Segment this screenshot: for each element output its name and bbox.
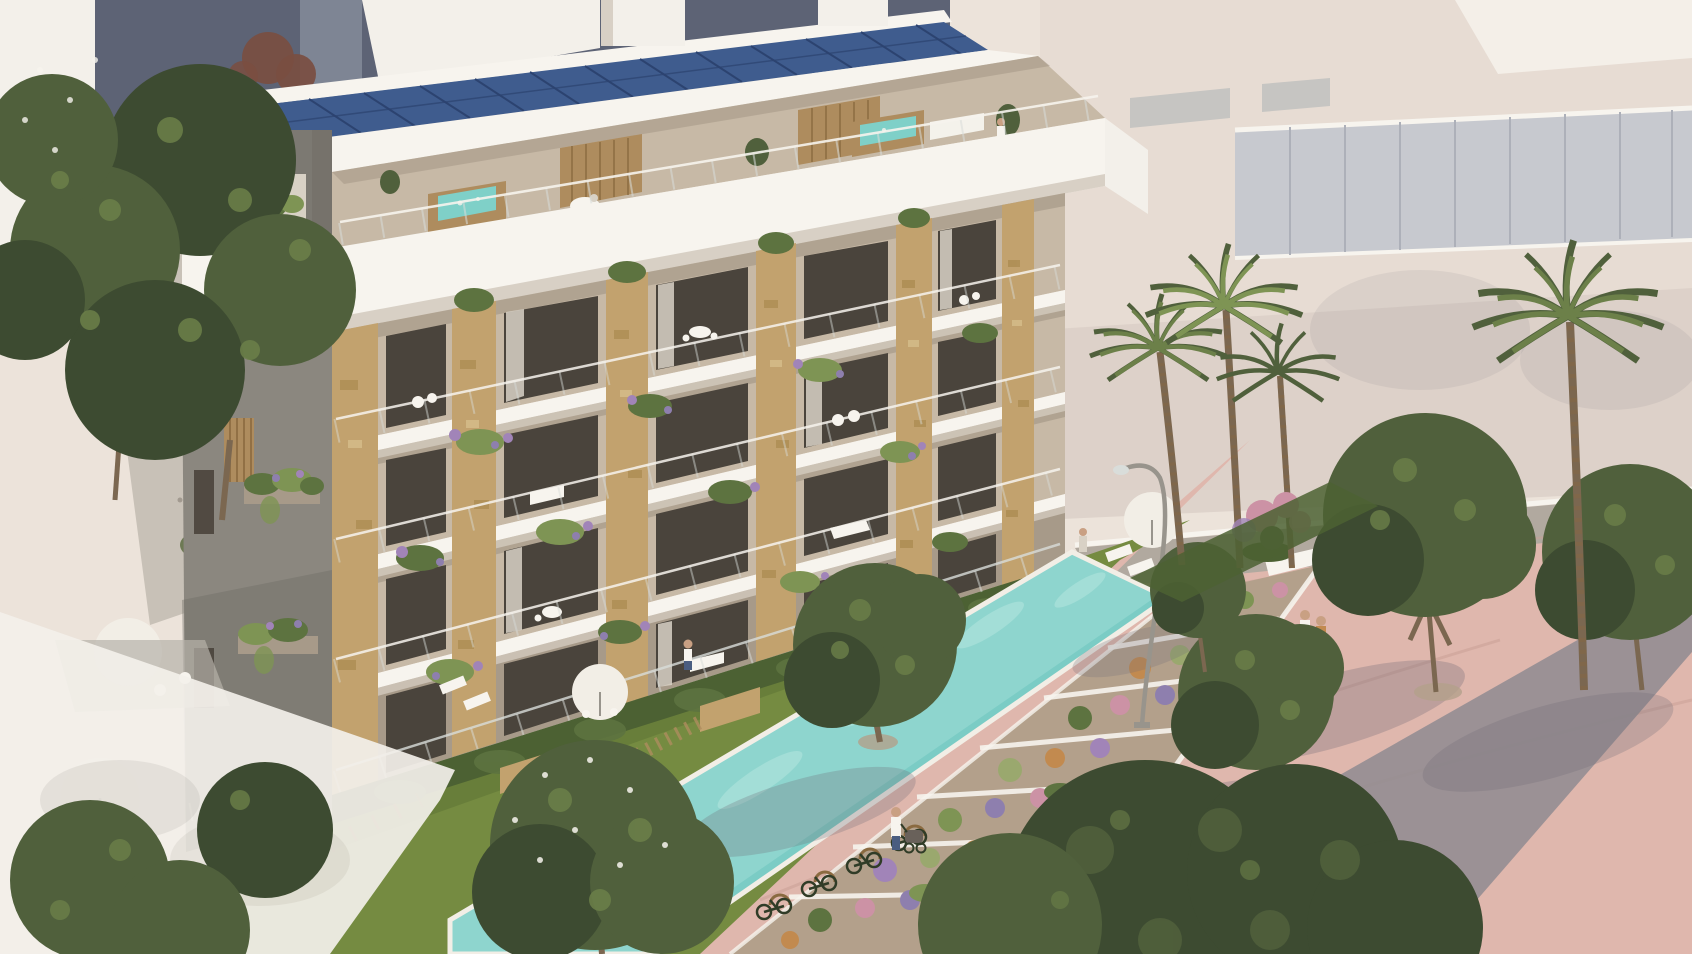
glass-band	[1235, 108, 1692, 258]
architectural-rendering	[0, 0, 1692, 954]
roof-bulkhead	[818, 0, 888, 26]
person-standing	[1079, 528, 1087, 552]
palm-shadow-on-wall	[1520, 310, 1692, 410]
ground-terrace-umbrella	[572, 664, 628, 720]
roof-bulkhead	[601, 0, 685, 46]
palm-shadow-on-wall	[1310, 270, 1530, 390]
potted-plant	[380, 170, 400, 194]
rendering-stage	[0, 0, 1692, 954]
jogger	[684, 640, 693, 671]
stroller	[905, 830, 923, 843]
end-wall-window	[194, 470, 214, 534]
roof-bulkhead-shade	[601, 0, 613, 46]
